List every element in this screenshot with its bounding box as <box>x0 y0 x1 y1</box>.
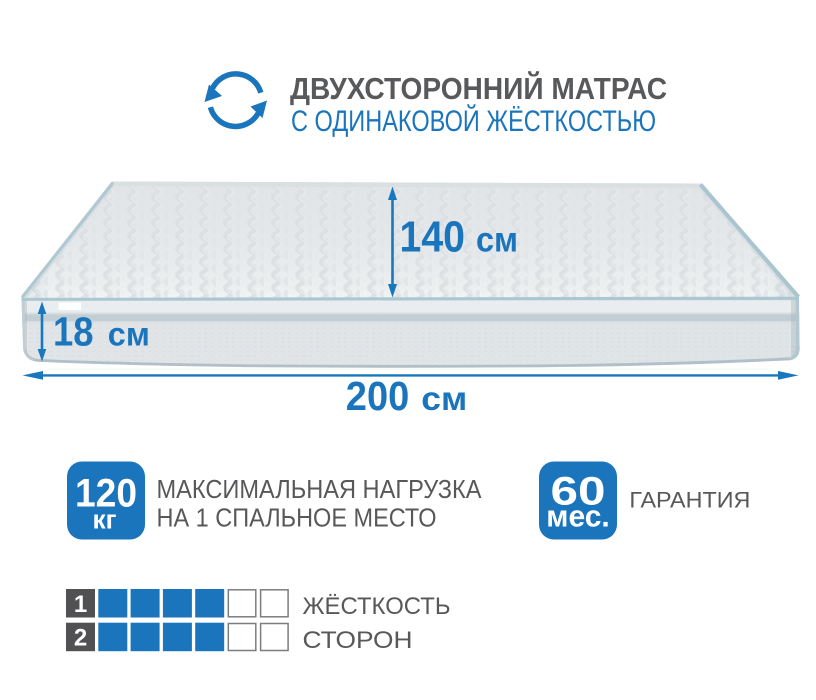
svg-text:ЖЁСТКОСТЬ: ЖЁСТКОСТЬ <box>303 593 451 620</box>
svg-text:ГАРАНТИЯ: ГАРАНТИЯ <box>629 488 750 513</box>
svg-text:140см: 140см <box>400 213 519 262</box>
svg-text:2: 2 <box>74 625 87 652</box>
svg-text:ДВУХСТОРОННИЙ МАТРАС: ДВУХСТОРОННИЙ МАТРАС <box>290 70 667 106</box>
svg-text:кг: кг <box>93 504 117 534</box>
svg-text:С ОДИНАКОВОЙ ЖЁСТКОСТЬЮ: С ОДИНАКОВОЙ ЖЁСТКОСТЬЮ <box>291 104 656 138</box>
svg-text:НА 1 СПАЛЬНОЕ МЕСТО: НА 1 СПАЛЬНОЕ МЕСТО <box>157 503 437 533</box>
svg-text:1: 1 <box>74 591 87 618</box>
svg-text:мес.: мес. <box>546 498 610 533</box>
svg-text:200см: 200см <box>346 373 468 419</box>
svg-text:МАКСИМАЛЬНАЯ НАГРУЗКА: МАКСИМАЛЬНАЯ НАГРУЗКА <box>157 474 483 504</box>
svg-text:СТОРОН: СТОРОН <box>303 627 413 654</box>
